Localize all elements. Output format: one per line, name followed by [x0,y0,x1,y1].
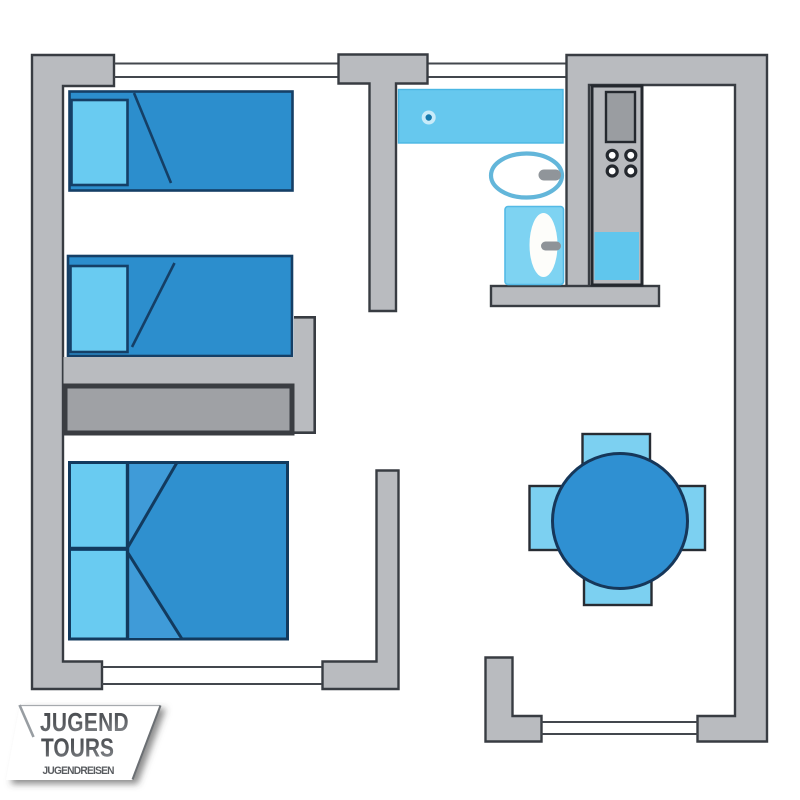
svg-text:JUGEND: JUGEND [40,708,129,736]
svg-text:TOURS: TOURS [41,734,114,762]
svg-text:JUGENDREISEN: JUGENDREISEN [43,765,115,778]
